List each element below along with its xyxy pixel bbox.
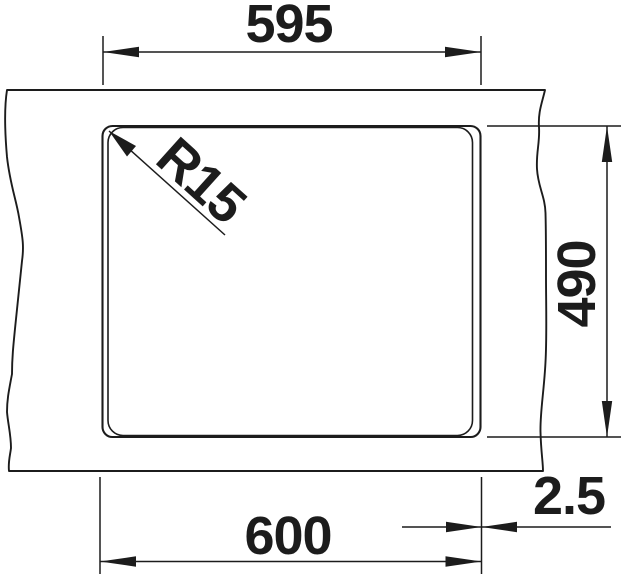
dimension-value-490: 490 <box>547 240 607 327</box>
arrow-left-icon <box>482 522 518 532</box>
radius-callout: R15 <box>109 126 257 235</box>
arrow-right-icon <box>446 522 482 532</box>
arrow-right-icon <box>445 47 481 57</box>
countertop-outline <box>5 90 546 471</box>
arrow-left-icon <box>103 47 139 57</box>
sink-cutout-drawing: 595 600 490 2.5 <box>0 0 625 577</box>
arrow-left-icon <box>100 556 136 566</box>
dimension-value-2-5: 2.5 <box>533 466 605 526</box>
technical-drawing-canvas: 595 600 490 2.5 <box>0 0 625 577</box>
arrow-up-icon <box>602 126 612 162</box>
dimension-value-600: 600 <box>244 506 331 566</box>
dimension-rim-overhang: 2.5 <box>402 466 611 532</box>
arrow-up-left-icon <box>109 131 136 157</box>
dimension-value-595: 595 <box>245 0 332 54</box>
dimension-overall-width: 600 <box>100 477 482 574</box>
dimension-cutout-depth: 490 <box>487 126 621 437</box>
arrow-down-icon <box>602 401 612 437</box>
dimension-cutout-width: 595 <box>103 0 481 85</box>
arrow-right-icon <box>446 556 482 566</box>
radius-value-r15: R15 <box>145 126 257 235</box>
